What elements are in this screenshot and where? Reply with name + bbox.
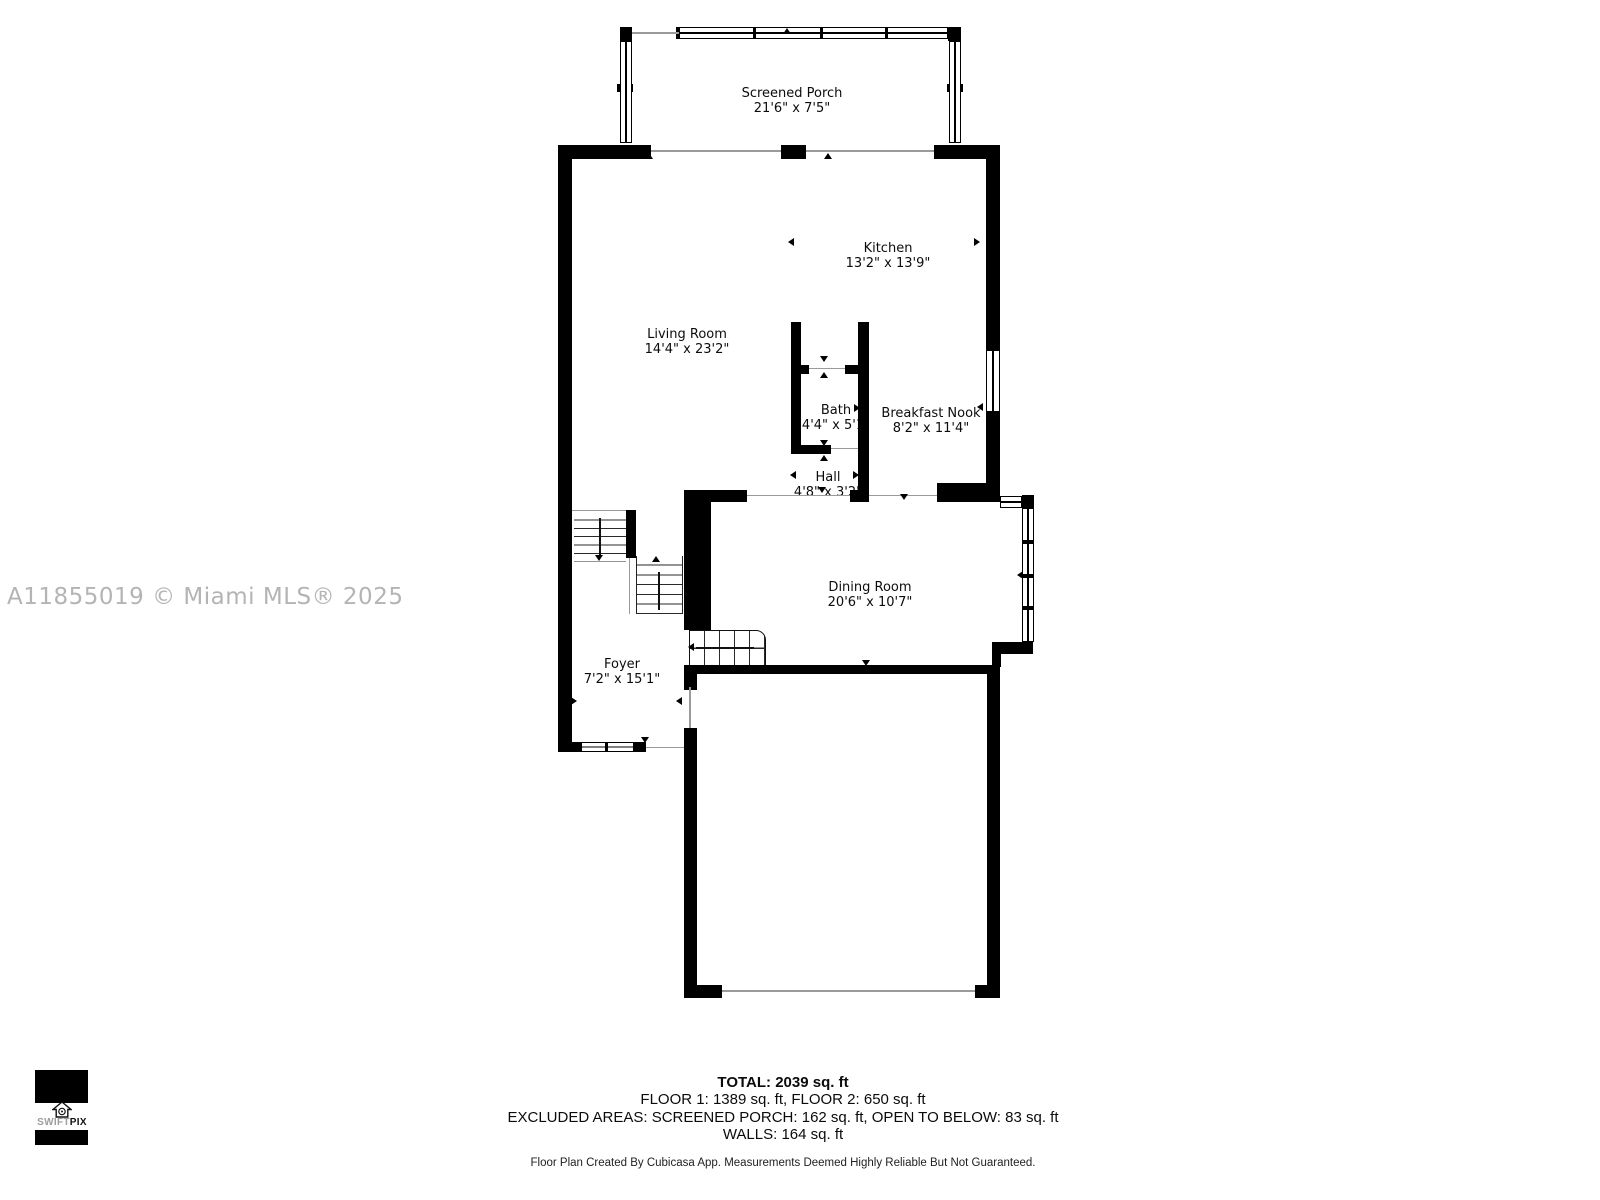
wall-segment <box>975 985 1000 998</box>
door-marker <box>688 643 694 651</box>
room-label-kitchen: Kitchen 13'2" x 13'9" <box>846 241 931 271</box>
door-marker <box>783 28 791 34</box>
window <box>1000 496 1022 508</box>
room-label-foyer: Foyer 7'2" x 15'1" <box>584 657 660 687</box>
door-marker <box>853 471 859 479</box>
swiftpix-logo-text: SWIFTPIX <box>31 1117 93 1128</box>
room-name: Dining Room <box>828 580 913 595</box>
wall-segment <box>791 322 801 453</box>
wall-segment <box>858 322 869 502</box>
room-dimensions: 21'6" x 7'5" <box>742 101 843 116</box>
window-divider <box>753 28 756 38</box>
door-marker <box>1017 571 1023 579</box>
arrow-stem <box>696 647 754 649</box>
wall-segment <box>558 145 572 750</box>
door-marker <box>977 403 983 411</box>
door-marker <box>854 404 860 412</box>
wall-segment <box>791 365 809 374</box>
excluded-areas: EXCLUDED AREAS: SCREENED PORCH: 162 sq. … <box>507 1109 1058 1126</box>
room-label-breakfast-nook: Breakfast Nook 8'2" x 11'4" <box>881 406 980 436</box>
door-marker <box>641 737 649 743</box>
door-marker <box>595 555 603 561</box>
wall-segment <box>986 145 1000 350</box>
logo-block-bottom <box>35 1130 88 1145</box>
opening-line <box>747 495 850 496</box>
wall-segment <box>948 27 961 41</box>
room-dimensions: 20'6" x 10'7" <box>828 595 913 610</box>
logo-block-top <box>35 1070 88 1103</box>
mls-watermark: A11855019 © Miami MLS® 2025 <box>7 584 403 610</box>
opening-line <box>646 747 684 748</box>
arrow-stem <box>658 572 660 610</box>
window-divider <box>605 743 608 751</box>
wall-segment <box>558 742 581 752</box>
window-divider <box>1023 540 1033 544</box>
wall-segment <box>684 502 711 630</box>
window-divider <box>1023 606 1033 610</box>
room-name: Kitchen <box>846 241 931 256</box>
area-summary: TOTAL: 2039 sq. ft FLOOR 1: 1389 sq. ft,… <box>507 1074 1058 1144</box>
wall-segment <box>987 665 1000 988</box>
door-marker <box>676 697 682 705</box>
wall-segment <box>558 145 651 159</box>
door-marker <box>900 494 908 500</box>
wall-segment <box>937 483 1000 502</box>
room-label-living-room: Living Room 14'4" x 23'2" <box>645 327 730 357</box>
opening-line <box>689 687 691 728</box>
window <box>620 41 632 143</box>
door-marker <box>571 697 577 705</box>
wall-segment <box>684 665 1000 674</box>
floor-plan: A11855019 © Miami MLS® 2025 Screened Por… <box>0 0 1600 1200</box>
logo-swift: SWIFT <box>37 1117 70 1128</box>
window-divider <box>820 28 823 38</box>
wall-segment <box>684 728 697 988</box>
opening-line <box>572 510 626 511</box>
room-label-dining-room: Dining Room 20'6" x 10'7" <box>828 580 913 610</box>
room-name: Foyer <box>584 657 660 672</box>
wall-segment <box>845 365 869 374</box>
walls-area: WALLS: 164 sq. ft <box>507 1126 1058 1143</box>
room-name: Screened Porch <box>742 86 843 101</box>
opening-line <box>806 150 934 152</box>
window <box>949 41 961 143</box>
opening-line <box>809 368 845 369</box>
total-area: TOTAL: 2039 sq. ft <box>507 1074 1058 1091</box>
door-marker <box>790 471 796 479</box>
room-label-screened-porch: Screened Porch 21'6" x 7'5" <box>742 86 843 116</box>
window-divider <box>885 28 888 38</box>
room-name: Hall <box>794 470 862 485</box>
door-marker <box>824 153 832 159</box>
room-dimensions: 7'2" x 15'1" <box>584 672 660 687</box>
door-marker <box>818 487 826 493</box>
door-marker <box>560 324 566 332</box>
logo-pix: PIX <box>70 1117 87 1128</box>
opening-line <box>831 448 858 449</box>
room-dimensions: 8'2" x 11'4" <box>881 421 980 436</box>
wall-segment <box>1022 495 1034 509</box>
door-marker <box>820 440 828 446</box>
room-name: Living Room <box>645 327 730 342</box>
wall-segment <box>986 412 1000 483</box>
door-marker <box>788 238 794 246</box>
door-marker <box>974 238 980 246</box>
door-marker <box>820 372 828 378</box>
wall-segment <box>850 490 869 502</box>
door-marker <box>820 356 828 362</box>
wall-segment <box>634 742 646 752</box>
wall-segment <box>781 145 806 159</box>
floor-areas: FLOOR 1: 1389 sq. ft, FLOOR 2: 650 sq. f… <box>507 1091 1058 1108</box>
room-dimensions: 14'4" x 23'2" <box>645 342 730 357</box>
wall-segment <box>620 27 632 41</box>
door-marker <box>652 556 660 562</box>
window-divider <box>1023 574 1033 578</box>
arrow-stem <box>599 518 601 555</box>
wall-segment <box>626 510 636 558</box>
wall-segment <box>791 445 831 454</box>
opening-line <box>629 558 630 614</box>
wall-segment <box>684 985 722 998</box>
opening-line <box>632 32 679 34</box>
opening-line <box>722 990 975 992</box>
wall-segment <box>992 642 1033 654</box>
opening-line <box>651 150 781 152</box>
door-marker <box>645 153 653 159</box>
window <box>986 350 1000 412</box>
room-dimensions: 13'2" x 13'9" <box>846 256 931 271</box>
door-marker <box>862 660 870 666</box>
wall-segment <box>684 490 747 502</box>
disclaimer-text: Floor Plan Created By Cubicasa App. Meas… <box>531 1157 1036 1169</box>
room-name: Breakfast Nook <box>881 406 980 421</box>
window <box>679 27 948 39</box>
door-marker <box>820 455 828 461</box>
